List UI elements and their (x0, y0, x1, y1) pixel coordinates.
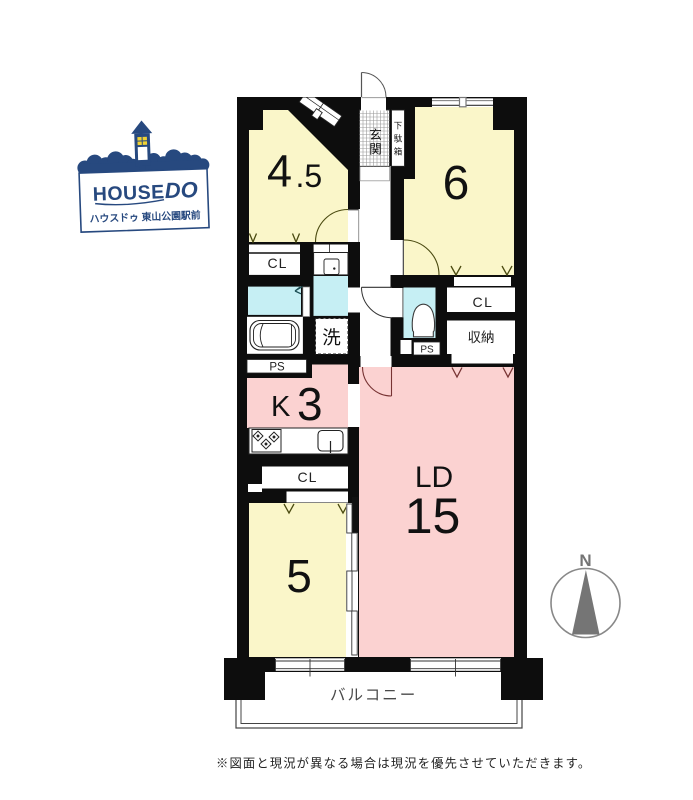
svg-text:6: 6 (443, 157, 470, 210)
svg-text:※図面と現況が異なる場合は現況を優先させていただきます。: ※図面と現況が異なる場合は現況を優先させていただきます。 (216, 756, 591, 771)
svg-text:.5: .5 (296, 158, 323, 194)
svg-text:関: 関 (369, 143, 382, 157)
svg-text:K: K (271, 391, 291, 423)
svg-text:DO: DO (164, 177, 198, 203)
svg-text:CL: CL (268, 255, 288, 271)
svg-text:バルコニー: バルコニー (330, 687, 417, 704)
svg-text:玄: 玄 (369, 127, 382, 142)
svg-text:駄: 駄 (394, 134, 403, 144)
svg-text:収納: 収納 (468, 330, 495, 345)
svg-text:PS: PS (420, 345, 434, 356)
svg-text:PS: PS (269, 362, 285, 374)
svg-text:3: 3 (297, 378, 323, 430)
svg-text:箱: 箱 (394, 147, 403, 157)
svg-text:5: 5 (286, 550, 312, 602)
svg-text:N: N (579, 551, 591, 570)
svg-text:下: 下 (394, 121, 403, 131)
svg-text:4: 4 (267, 146, 292, 197)
svg-text:CL: CL (473, 294, 494, 310)
svg-text:洗: 洗 (322, 327, 341, 348)
svg-text:15: 15 (405, 488, 461, 544)
svg-text:CL: CL (298, 469, 318, 485)
